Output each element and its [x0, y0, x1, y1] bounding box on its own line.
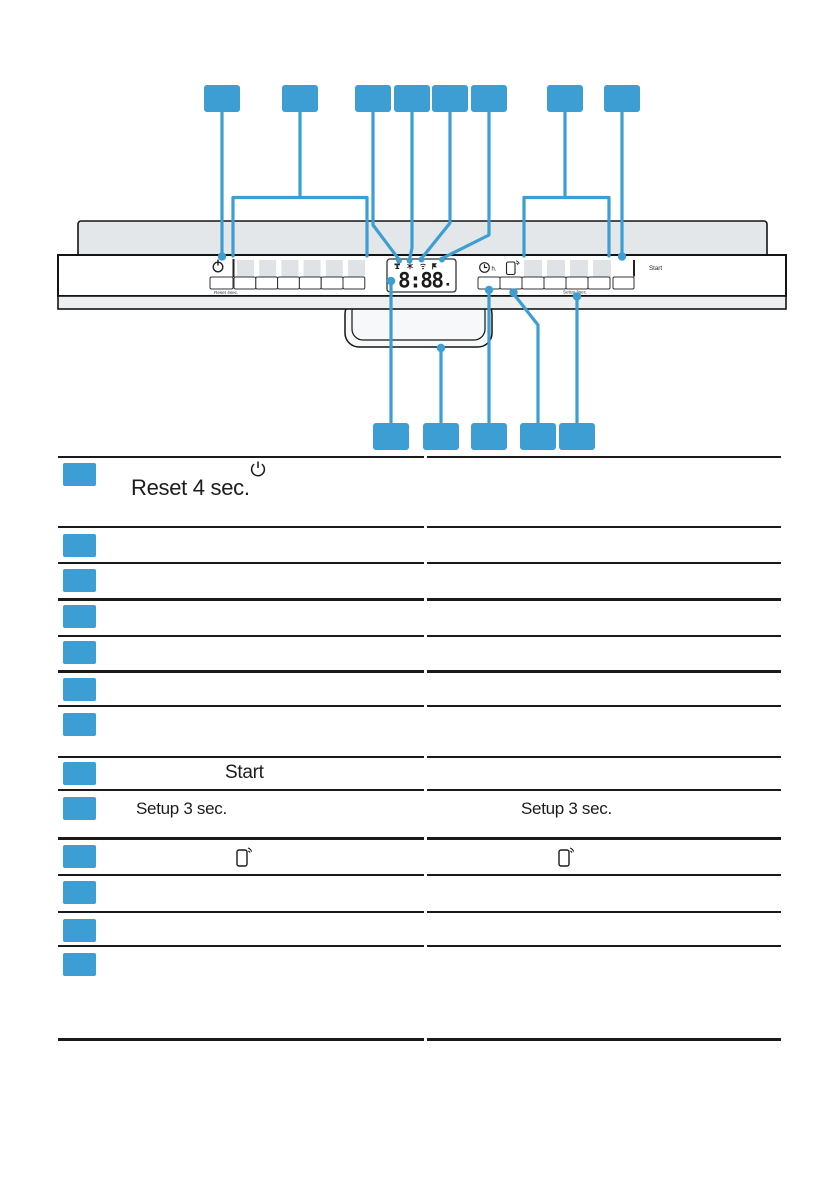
- phone-icon: [558, 844, 574, 869]
- table-rule: [427, 526, 781, 528]
- callout-2: [282, 85, 318, 112]
- row-marker-7: [63, 713, 96, 736]
- row-8-text: Start: [225, 762, 264, 784]
- table-rule: [427, 562, 781, 564]
- table-rule: [427, 874, 781, 876]
- table-rule: [427, 1038, 781, 1041]
- callout-squares-bottom: [373, 423, 595, 450]
- table-rule: [58, 562, 424, 564]
- table-rule: [58, 598, 424, 601]
- callout-squares-top: [204, 85, 640, 112]
- row-marker-11: [63, 881, 96, 904]
- row-1-text: Reset 4 sec.: [131, 475, 250, 501]
- row-marker-3: [63, 569, 96, 592]
- row-marker-5: [63, 641, 96, 664]
- table-rule: [427, 705, 781, 707]
- panel-start-label: Start: [649, 265, 662, 272]
- table-rule: [58, 945, 424, 947]
- control-panel-diagram: Reset 4sec. 8:88 h.: [0, 0, 839, 460]
- callout-11: [471, 423, 507, 450]
- table-rule: [427, 945, 781, 947]
- row-marker-10: [63, 845, 96, 868]
- row-marker-9: [63, 797, 96, 820]
- callout-5: [432, 85, 468, 112]
- row-marker-12: [63, 919, 96, 942]
- table-rule: [427, 670, 781, 673]
- table-rule: [58, 670, 424, 673]
- table-rule: [427, 789, 781, 791]
- callout-7: [547, 85, 583, 112]
- table-rule: [58, 789, 424, 791]
- display-dot: [447, 283, 450, 286]
- door-top-panel: [78, 221, 767, 257]
- table-rule: [58, 635, 424, 637]
- callout-9: [373, 423, 409, 450]
- display-digits: 8:88: [398, 269, 443, 293]
- row-marker-2: [63, 534, 96, 557]
- row-marker-8: [63, 762, 96, 785]
- table-rule: [427, 911, 781, 913]
- time-unit-label: h.: [492, 267, 497, 273]
- row-9-left-text: Setup 3 sec.: [136, 799, 227, 819]
- callout-10: [423, 423, 459, 450]
- manual-page: Reset 4sec. 8:88 h.: [0, 0, 839, 1191]
- callout-6: [471, 85, 507, 112]
- table-rule: [427, 635, 781, 637]
- row-marker-13: [63, 953, 96, 976]
- table-rule: [58, 456, 424, 458]
- table-rule: [427, 456, 781, 458]
- callout-1: [204, 85, 240, 112]
- table-rule: [58, 705, 424, 707]
- table-rule: [58, 526, 424, 528]
- panel-reset-label: Reset 4sec.: [214, 290, 238, 295]
- callout-3: [355, 85, 391, 112]
- phone-icon: [236, 844, 252, 869]
- table-rule: [58, 837, 424, 840]
- button-row-left: [210, 277, 365, 289]
- row-marker-1: [63, 463, 96, 486]
- table-rule: [427, 598, 781, 601]
- callout-12: [520, 423, 556, 450]
- row-marker-6: [63, 678, 96, 701]
- row-9-right-text: Setup 3 sec.: [521, 799, 612, 819]
- table-rule: [58, 1038, 424, 1041]
- table-rule: [58, 756, 424, 758]
- callout-13: [559, 423, 595, 450]
- table-rule: [427, 837, 781, 840]
- table-rule: [58, 911, 424, 913]
- power-icon: [248, 459, 268, 479]
- callout-8: [604, 85, 640, 112]
- table-rule: [58, 874, 424, 876]
- callout-4: [394, 85, 430, 112]
- row-marker-4: [63, 605, 96, 628]
- table-rule: [427, 756, 781, 758]
- panel-bottom-edge: [58, 296, 786, 309]
